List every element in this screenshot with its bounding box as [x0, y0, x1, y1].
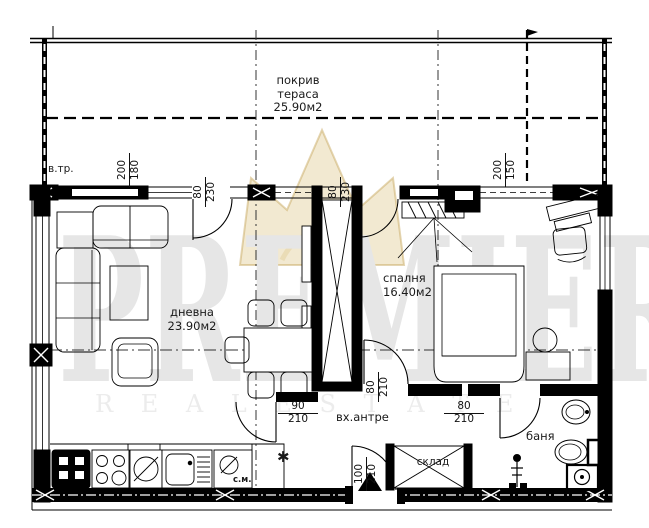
- armchair: [112, 338, 158, 386]
- floor-plan: PREMIER R E A L E S T A T E: [0, 0, 649, 528]
- bathroom: [509, 400, 600, 490]
- shaft: [312, 196, 362, 391]
- living-label: дневна 23.90м2: [152, 306, 232, 333]
- sofa-corner: [57, 212, 93, 248]
- toilet: [555, 440, 587, 464]
- dim-bedroom-terrace-door: 80 230: [328, 177, 352, 207]
- living-furniture: [56, 206, 312, 398]
- nightstand: [526, 352, 570, 380]
- washing-machine-label: с.м.: [233, 476, 251, 485]
- dining-table: [244, 328, 312, 372]
- boiler-symbol: ✱: [277, 450, 290, 465]
- bedroom-label: спалня 16.40м2: [383, 272, 432, 299]
- kitchen-corner-unit: [52, 450, 90, 488]
- dim-top-left: 200 180: [117, 153, 141, 187]
- dim-top-right: 200 150: [493, 153, 517, 187]
- desk-chair: [553, 226, 588, 263]
- dim-living-hall-door: 90 210: [278, 401, 318, 425]
- sofa-left: [56, 248, 100, 352]
- bed: [434, 266, 524, 382]
- terrace-label: покрив тераса 25.90м2: [258, 74, 338, 115]
- tv: [302, 226, 311, 282]
- vent-shaft-label: в.тр.: [48, 163, 74, 177]
- dim-living-terrace-door: 80 230: [193, 177, 217, 207]
- stool: [533, 328, 557, 352]
- bath-label: баня: [526, 430, 555, 444]
- stove: [92, 450, 129, 488]
- wall-left: [30, 186, 52, 510]
- dim-bedroom-door: 80 210: [366, 372, 390, 402]
- sofa-top: [93, 206, 168, 248]
- chair: [248, 300, 274, 326]
- wall-bedroom-bottom: [408, 384, 612, 396]
- hall-label: вх.антре: [336, 411, 389, 425]
- wall-bottom: [32, 486, 612, 510]
- coffee-table: [110, 266, 148, 320]
- storage-label: склад: [408, 456, 458, 470]
- shower-fixture: [514, 455, 521, 462]
- chair: [248, 372, 274, 398]
- dim-bath-door: 80 210: [444, 401, 484, 425]
- dim-entrance-door: 100 210: [354, 457, 378, 491]
